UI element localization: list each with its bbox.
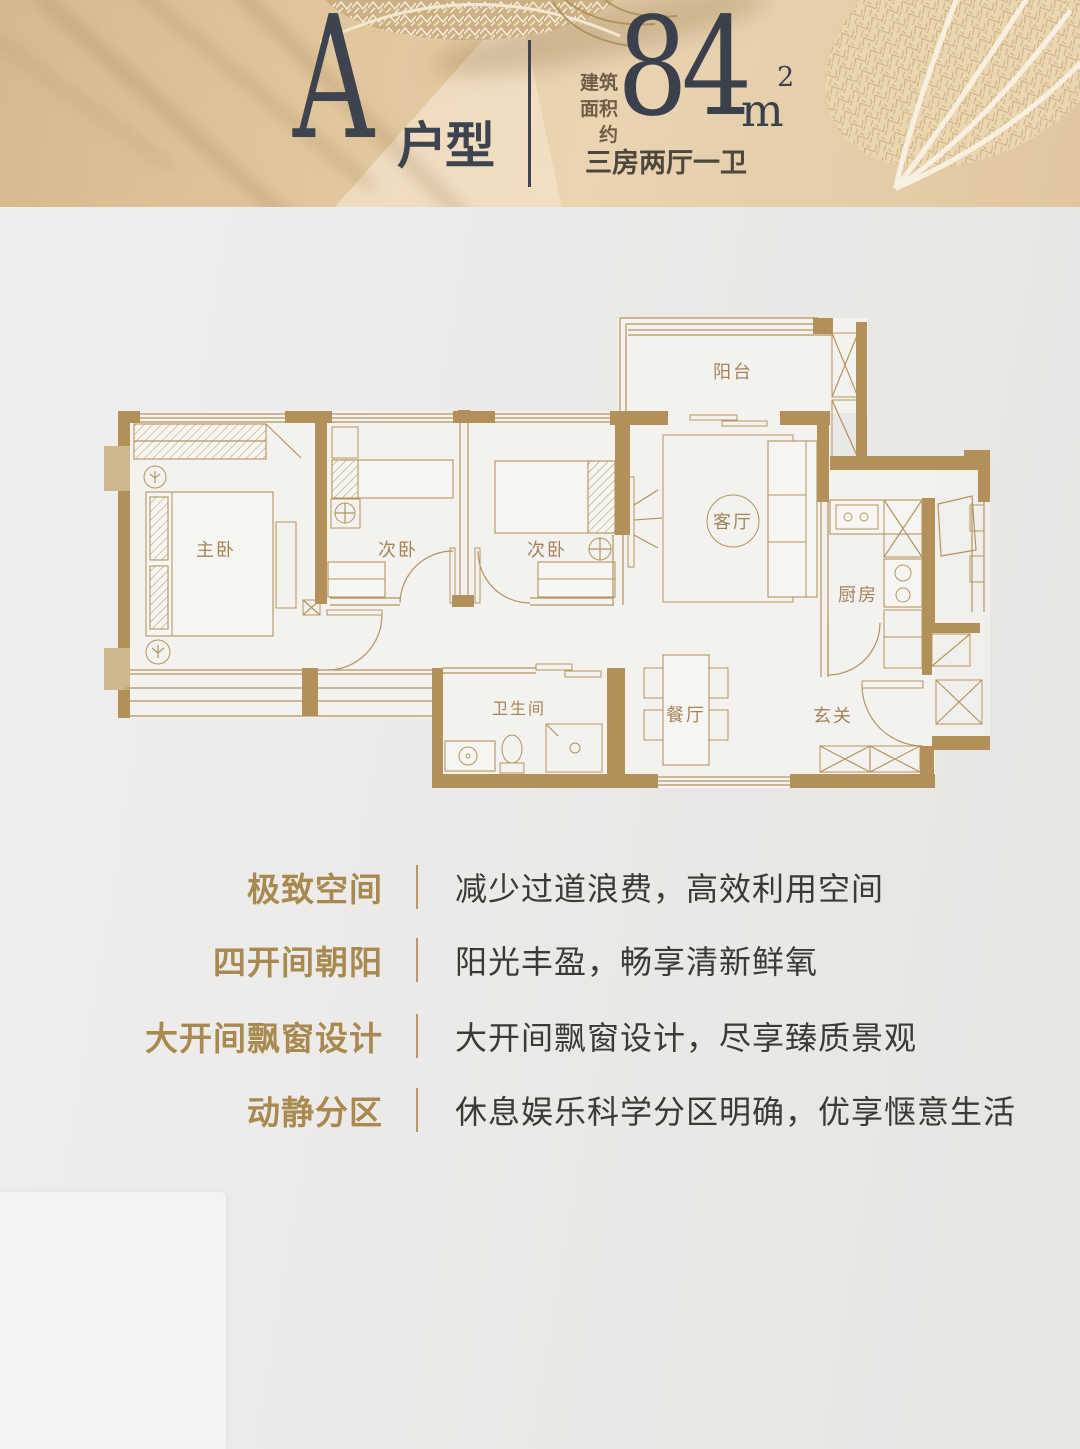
feature-title: 四开间朝阳	[0, 936, 383, 984]
south-wall	[432, 774, 935, 788]
room-label-dining-room: 餐厅	[666, 705, 706, 725]
feature-divider	[416, 938, 418, 982]
feature-description: 阳光丰盈，畅享清新鲜氧	[455, 937, 818, 983]
room-label-master-bedroom: 主卧	[196, 540, 236, 560]
room-label-kitchen: 厨房	[838, 585, 878, 605]
room-label-bathroom: 卫生间	[492, 700, 546, 718]
feature-title: 极致空间	[0, 863, 383, 911]
feature-title: 大开间飘窗设计	[0, 1012, 383, 1060]
feature-description: 减少过道浪费，高效利用空间	[455, 864, 884, 910]
floor-plan: 阳台 主卧 次卧 次卧 客厅 厨房 卫生间 餐厅 玄关	[0, 0, 1080, 1449]
poster: A 户型 建筑 面积 约 84 m 2 三房两厅一卫	[0, 0, 1080, 1449]
feature-description: 大开间飘窗设计，尽享臻质景观	[455, 1013, 917, 1059]
room-label-bedroom-2: 次卧	[378, 540, 418, 560]
feature-row: 动静分区 休息娱乐科学分区明确，优享惬意生活	[0, 1081, 1080, 1139]
feature-divider	[416, 865, 418, 909]
feature-divider	[416, 1088, 418, 1132]
feature-description: 休息娱乐科学分区明确，优享惬意生活	[455, 1087, 1016, 1133]
feature-row: 四开间朝阳 阳光丰盈，畅享清新鲜氧	[0, 931, 1080, 989]
room-label-foyer: 玄关	[813, 706, 853, 726]
room-label-balcony: 阳台	[713, 362, 753, 382]
feature-title: 动静分区	[0, 1086, 383, 1134]
room-label-living-room: 客厅	[713, 512, 753, 532]
west-wall	[104, 411, 130, 718]
room-label-bedroom-3: 次卧	[527, 540, 567, 560]
feature-row: 大开间飘窗设计 大开间飘窗设计，尽享臻质景观	[0, 1007, 1080, 1065]
feature-divider	[416, 1014, 418, 1058]
feature-row: 极致空间 减少过道浪费，高效利用空间	[0, 858, 1080, 916]
